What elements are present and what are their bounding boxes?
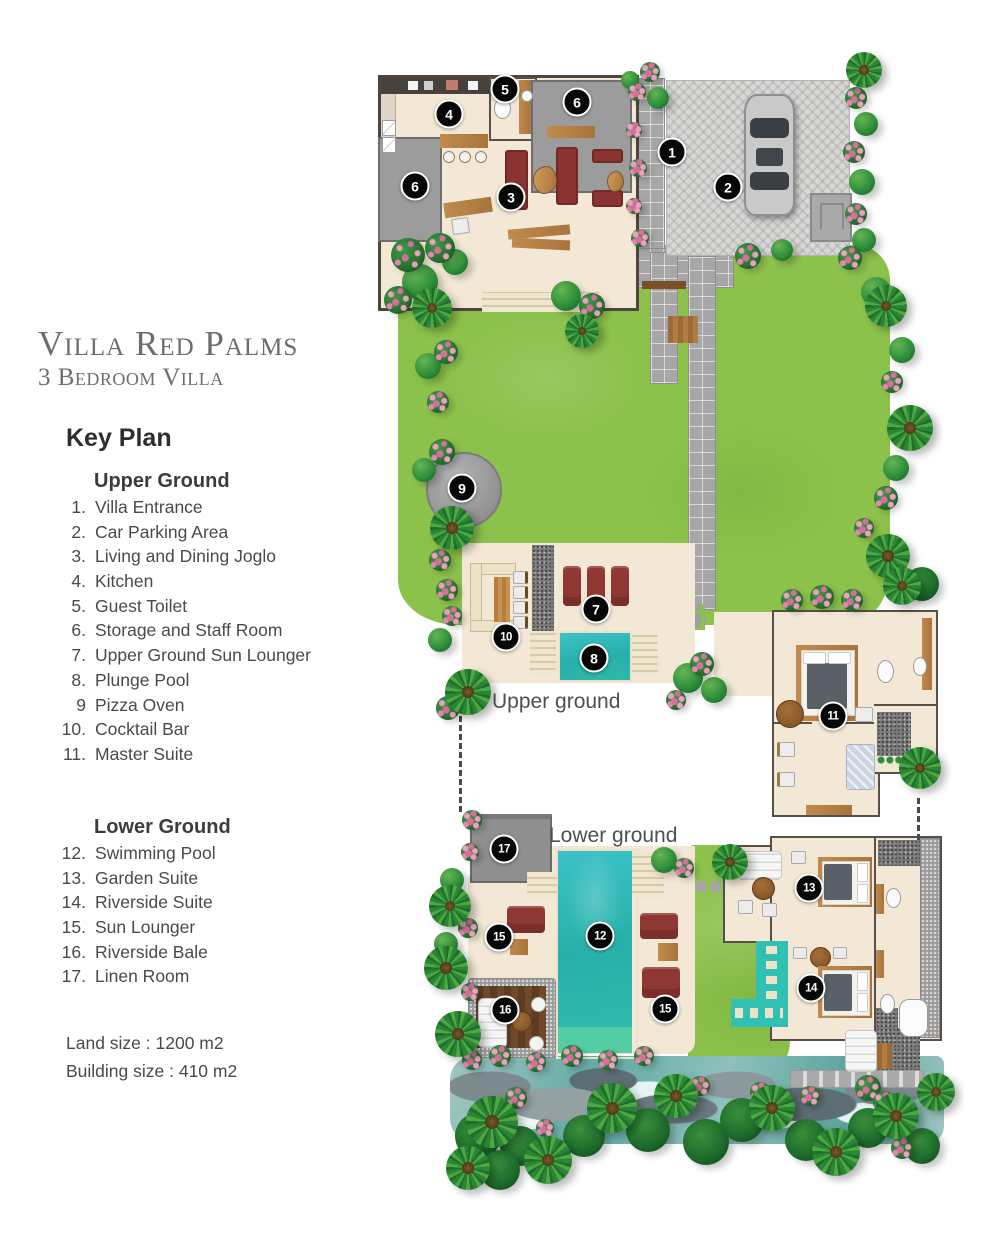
key-plan-item-number: 9 bbox=[50, 695, 86, 716]
palm-tree bbox=[565, 314, 599, 348]
shrub bbox=[883, 455, 909, 481]
key-plan-item-number: 1. bbox=[50, 497, 86, 518]
toilet-vanity bbox=[519, 80, 531, 134]
chair bbox=[833, 947, 847, 959]
kitchen-fridge bbox=[382, 120, 396, 136]
bathtub bbox=[899, 999, 928, 1037]
flower-bush bbox=[442, 606, 462, 626]
key-plan-item-label: Master Suite bbox=[95, 744, 193, 765]
level-divider-dashed-right bbox=[917, 798, 920, 840]
plan-marker-15: 15 bbox=[485, 923, 514, 952]
key-plan-item-label: Sun Lounger bbox=[95, 917, 195, 938]
key-plan-item-number: 10. bbox=[50, 719, 86, 740]
chair bbox=[529, 1036, 544, 1051]
key-plan-item-number: 5. bbox=[50, 596, 86, 617]
key-plan-item: 15.Sun Lounger bbox=[50, 917, 350, 942]
plan-marker-2: 2 bbox=[714, 173, 743, 202]
armchair bbox=[777, 772, 795, 787]
flower-bush bbox=[735, 243, 761, 269]
flower-bush bbox=[810, 585, 834, 609]
key-plan-item-number: 2. bbox=[50, 522, 86, 543]
bar-stool bbox=[513, 601, 528, 614]
round-table bbox=[776, 700, 804, 728]
flower-bush bbox=[489, 1045, 511, 1067]
bathroom-vanity bbox=[876, 884, 884, 914]
sun-lounger bbox=[642, 967, 680, 998]
level-divider-dashed-left bbox=[459, 716, 462, 812]
shrub bbox=[889, 337, 915, 363]
upper-ground-plan-label: Upper ground bbox=[492, 690, 620, 714]
key-plan-item-label: Kitchen bbox=[95, 571, 153, 592]
dining-sofa bbox=[556, 147, 578, 205]
flower-bush bbox=[434, 340, 458, 364]
chair bbox=[738, 900, 753, 914]
flower-bush bbox=[626, 122, 642, 138]
palm-tree bbox=[749, 1085, 795, 1131]
flower-bush bbox=[631, 229, 649, 247]
toilet-fixture bbox=[886, 888, 901, 908]
small-wood-deck bbox=[668, 316, 698, 343]
lower-ground-plan-label: Lower ground bbox=[549, 824, 677, 848]
palm-tree bbox=[812, 1128, 860, 1176]
pillow bbox=[857, 884, 868, 903]
key-plan-item: 3.Living and Dining Joglo bbox=[50, 546, 350, 571]
key-plan-item-number: 13. bbox=[50, 868, 86, 889]
palm-tree bbox=[654, 1074, 698, 1118]
coffee-table bbox=[607, 171, 624, 192]
key-plan-item-label: Pizza Oven bbox=[95, 695, 184, 716]
palm-tree bbox=[466, 1096, 518, 1148]
page-title: Villa Red Palms bbox=[38, 326, 298, 361]
lower-ground-heading: Lower Ground bbox=[94, 816, 231, 839]
chair bbox=[531, 997, 546, 1012]
key-plan-item-label: Riverside Suite bbox=[95, 892, 213, 913]
key-plan-item-label: Garden Suite bbox=[95, 868, 198, 889]
bar-stool bbox=[475, 151, 487, 163]
building-size-text: Building size : 410 m2 bbox=[66, 1061, 237, 1082]
land-size-text: Land size : 1200 m2 bbox=[66, 1033, 224, 1054]
key-plan-item-label: Living and Dining Joglo bbox=[95, 546, 276, 567]
kitchen-stove bbox=[446, 80, 458, 90]
flower-bush bbox=[429, 549, 451, 571]
palm-tree bbox=[524, 1136, 572, 1184]
key-plan-item-number: 6. bbox=[50, 620, 86, 641]
key-plan-item-number: 8. bbox=[50, 670, 86, 691]
palm-tree bbox=[883, 567, 921, 605]
palm-tree bbox=[899, 747, 941, 789]
bed-blanket bbox=[824, 864, 852, 900]
flower-bush bbox=[881, 371, 903, 393]
key-plan-item: 8.Plunge Pool bbox=[50, 670, 350, 695]
sun-lounger bbox=[563, 566, 581, 606]
key-plan-item-number: 3. bbox=[50, 546, 86, 567]
round-table bbox=[752, 877, 775, 900]
side-table bbox=[658, 943, 678, 961]
plan-marker-6: 6 bbox=[563, 88, 592, 117]
flower-bush bbox=[425, 233, 455, 263]
stepping-stones bbox=[766, 945, 777, 999]
flower-bush bbox=[674, 858, 694, 878]
flower-bush bbox=[429, 439, 455, 465]
flower-bush bbox=[666, 690, 686, 710]
pillow bbox=[828, 652, 851, 664]
palm-tree bbox=[917, 1073, 955, 1111]
plan-marker-4: 4 bbox=[435, 100, 464, 129]
toilet-sink bbox=[521, 90, 533, 102]
armchair bbox=[855, 707, 873, 722]
plan-marker-3: 3 bbox=[497, 183, 526, 212]
flower-bush bbox=[461, 983, 479, 1001]
chair bbox=[762, 903, 777, 917]
plan-marker-12: 12 bbox=[586, 922, 615, 951]
plan-marker-15: 15 bbox=[651, 995, 680, 1024]
palm-tree bbox=[445, 669, 491, 715]
flower-bush bbox=[640, 62, 660, 82]
palm-tree bbox=[873, 1093, 919, 1139]
wood-walk-strip bbox=[877, 1043, 892, 1069]
key-plan-item-label: Linen Room bbox=[95, 966, 189, 987]
key-plan-item: 2.Car Parking Area bbox=[50, 522, 350, 547]
living-sofa bbox=[592, 149, 623, 163]
flower-bush bbox=[384, 286, 412, 314]
kitchen-cabinet bbox=[382, 137, 396, 153]
plan-marker-1: 1 bbox=[658, 138, 687, 167]
key-plan-item: 13.Garden Suite bbox=[50, 868, 350, 893]
bathroom-vanity bbox=[876, 950, 884, 978]
pool-steps-left bbox=[527, 872, 557, 898]
toilet-fixture bbox=[880, 994, 895, 1014]
palm-tree bbox=[412, 288, 452, 328]
sideboard bbox=[547, 126, 595, 138]
plan-marker-7: 7 bbox=[582, 595, 611, 624]
toilet-fixture bbox=[877, 660, 894, 683]
palm-tree bbox=[712, 844, 748, 880]
kitchen-appliance bbox=[468, 81, 478, 90]
flower-bush bbox=[427, 391, 449, 413]
round-table bbox=[810, 947, 831, 968]
pillow bbox=[803, 652, 826, 664]
flower-bush bbox=[800, 1086, 820, 1106]
bathroom-sink bbox=[913, 657, 927, 676]
page-subtitle: 3 Bedroom Villa bbox=[38, 365, 224, 390]
garden-bench bbox=[642, 281, 686, 289]
key-plan-item: 4.Kitchen bbox=[50, 571, 350, 596]
flower-bush bbox=[461, 843, 479, 861]
key-plan-item: 1.Villa Entrance bbox=[50, 497, 350, 522]
plan-marker-13: 13 bbox=[795, 874, 824, 903]
stepping-stones bbox=[735, 1008, 783, 1018]
luggage-rack bbox=[791, 851, 806, 864]
key-plan-item-number: 16. bbox=[50, 942, 86, 963]
flower-bush bbox=[561, 1045, 583, 1067]
flower-bush bbox=[526, 1052, 546, 1072]
flower-bush bbox=[628, 83, 646, 101]
car-sunroof bbox=[756, 148, 783, 166]
pillow bbox=[857, 863, 868, 882]
bar-stool bbox=[513, 586, 528, 599]
car bbox=[744, 94, 795, 216]
flower-bush bbox=[634, 1046, 654, 1066]
plan-marker-17: 17 bbox=[490, 835, 519, 864]
outdoor-daybed bbox=[845, 1030, 877, 1072]
armchair bbox=[777, 742, 795, 757]
shrub bbox=[854, 112, 878, 136]
palm-tree bbox=[887, 405, 933, 451]
palm-tree bbox=[446, 1146, 490, 1190]
palm-tree bbox=[429, 885, 471, 927]
bed-blanket bbox=[824, 974, 852, 1011]
sun-lounger bbox=[507, 906, 545, 933]
plan-marker-9: 9 bbox=[448, 474, 477, 503]
key-plan-item: 14.Riverside Suite bbox=[50, 892, 350, 917]
kitchen-appliance bbox=[424, 81, 433, 90]
key-plan-item-label: Riverside Bale bbox=[95, 942, 208, 963]
bar-stool bbox=[459, 151, 471, 163]
key-plan-item: 7.Upper Ground Sun Lounger bbox=[50, 645, 350, 670]
gate-structure-inner bbox=[820, 203, 844, 229]
garden-pond-horizontal bbox=[731, 999, 788, 1027]
key-plan-item-label: Car Parking Area bbox=[95, 522, 228, 543]
flower-bush bbox=[854, 518, 874, 538]
palm-tree bbox=[587, 1083, 637, 1133]
plan-marker-6: 6 bbox=[401, 172, 430, 201]
key-plan-item: 5.Guest Toilet bbox=[50, 596, 350, 621]
key-plan-item-number: 17. bbox=[50, 966, 86, 987]
flower-bush bbox=[626, 198, 642, 214]
bathroom-pebble-floor bbox=[878, 840, 920, 866]
pool-steps-left bbox=[530, 631, 556, 675]
key-plan-item-label: Villa Entrance bbox=[95, 497, 203, 518]
flower-bush bbox=[629, 159, 647, 177]
plan-marker-11: 11 bbox=[819, 702, 848, 731]
kitchen-sink bbox=[408, 81, 418, 90]
chair bbox=[793, 947, 807, 959]
sun-lounger bbox=[640, 913, 678, 939]
bathroom-vanity bbox=[922, 618, 932, 690]
key-plan-item: 12.Swimming Pool bbox=[50, 843, 350, 868]
palm-tree bbox=[430, 506, 474, 550]
flower-bush bbox=[536, 1119, 554, 1137]
daybed bbox=[846, 744, 875, 790]
palm-tree bbox=[435, 1011, 481, 1057]
upper-ground-heading: Upper Ground bbox=[94, 470, 230, 493]
bar-stool bbox=[513, 571, 528, 584]
palm-tree bbox=[865, 285, 907, 327]
key-plan-item: 11.Master Suite bbox=[50, 744, 350, 769]
plan-marker-5: 5 bbox=[491, 75, 520, 104]
flower-bush bbox=[845, 203, 867, 225]
car-windshield bbox=[750, 118, 789, 138]
shrub bbox=[551, 281, 581, 311]
upper-ground-list: 1.Villa Entrance2.Car Parking Area3.Livi… bbox=[50, 497, 350, 769]
key-plan-item-number: 12. bbox=[50, 843, 86, 864]
key-plan-item-label: Storage and Staff Room bbox=[95, 620, 282, 641]
swimming-pool bbox=[556, 849, 638, 1059]
wood-bench bbox=[806, 805, 852, 815]
desk-chair bbox=[451, 217, 470, 235]
key-plan-heading: Key Plan bbox=[66, 424, 172, 453]
plan-marker-8: 8 bbox=[580, 644, 609, 673]
flower-bush bbox=[841, 589, 863, 611]
key-plan-item: 17.Linen Room bbox=[50, 966, 350, 991]
flower-bush bbox=[843, 141, 865, 163]
flower-bush bbox=[391, 238, 425, 272]
sun-lounger bbox=[611, 566, 629, 606]
bar-stool bbox=[443, 151, 455, 163]
plan-marker-10: 10 bbox=[492, 623, 521, 652]
living-sofa bbox=[592, 190, 623, 207]
key-plan-item-number: 14. bbox=[50, 892, 86, 913]
flower-bush bbox=[781, 589, 803, 611]
plan-marker-16: 16 bbox=[491, 996, 520, 1025]
key-plan-item-number: 11. bbox=[50, 744, 86, 765]
shrub bbox=[849, 169, 875, 195]
plan-marker-14: 14 bbox=[797, 974, 826, 1003]
key-plan-item-number: 7. bbox=[50, 645, 86, 666]
flower-bush bbox=[598, 1050, 618, 1070]
garden-pond-vertical bbox=[756, 941, 788, 1003]
key-plan-item-label: Swimming Pool bbox=[95, 843, 216, 864]
shrub bbox=[701, 677, 727, 703]
pillow bbox=[857, 993, 868, 1012]
flower-bush bbox=[874, 486, 898, 510]
flower-bush bbox=[845, 87, 867, 109]
key-plan-item-label: Guest Toilet bbox=[95, 596, 187, 617]
villa-floor-plan-page: Villa Red Palms 3 Bedroom Villa Key Plan… bbox=[0, 0, 998, 1250]
flower-bush bbox=[838, 246, 862, 270]
key-plan-item: 10.Cocktail Bar bbox=[50, 719, 350, 744]
flower-bush bbox=[891, 1137, 913, 1159]
key-plan-item: 6.Storage and Staff Room bbox=[50, 620, 350, 645]
palm-tree bbox=[424, 946, 468, 990]
flower-bush bbox=[690, 652, 714, 676]
key-plan-item-label: Cocktail Bar bbox=[95, 719, 189, 740]
shrub bbox=[428, 628, 452, 652]
bar-wood-floor bbox=[494, 577, 510, 622]
pillow bbox=[857, 972, 868, 991]
key-plan-item: 16.Riverside Bale bbox=[50, 942, 350, 967]
coffee-table bbox=[533, 166, 557, 194]
flower-bush bbox=[436, 579, 458, 601]
key-plan-item-number: 15. bbox=[50, 917, 86, 938]
shrub bbox=[647, 87, 669, 109]
key-plan-item-label: Plunge Pool bbox=[95, 670, 189, 691]
key-plan-item-label: Upper Ground Sun Lounger bbox=[95, 645, 311, 666]
interior-wall bbox=[874, 704, 936, 706]
pool-steps-right bbox=[632, 635, 658, 677]
palm-tree bbox=[846, 52, 882, 88]
key-plan-item: 9Pizza Oven bbox=[50, 695, 350, 720]
lower-ground-list: 12.Swimming Pool13.Garden Suite14.Rivers… bbox=[50, 843, 350, 991]
flower-bush bbox=[462, 810, 482, 830]
gravel-strip bbox=[532, 545, 554, 631]
key-plan-item-number: 4. bbox=[50, 571, 86, 592]
outdoor-shower-floor bbox=[877, 712, 911, 756]
kitchen-island bbox=[440, 134, 488, 148]
shrub bbox=[771, 239, 793, 261]
car-rear-window bbox=[750, 172, 789, 190]
